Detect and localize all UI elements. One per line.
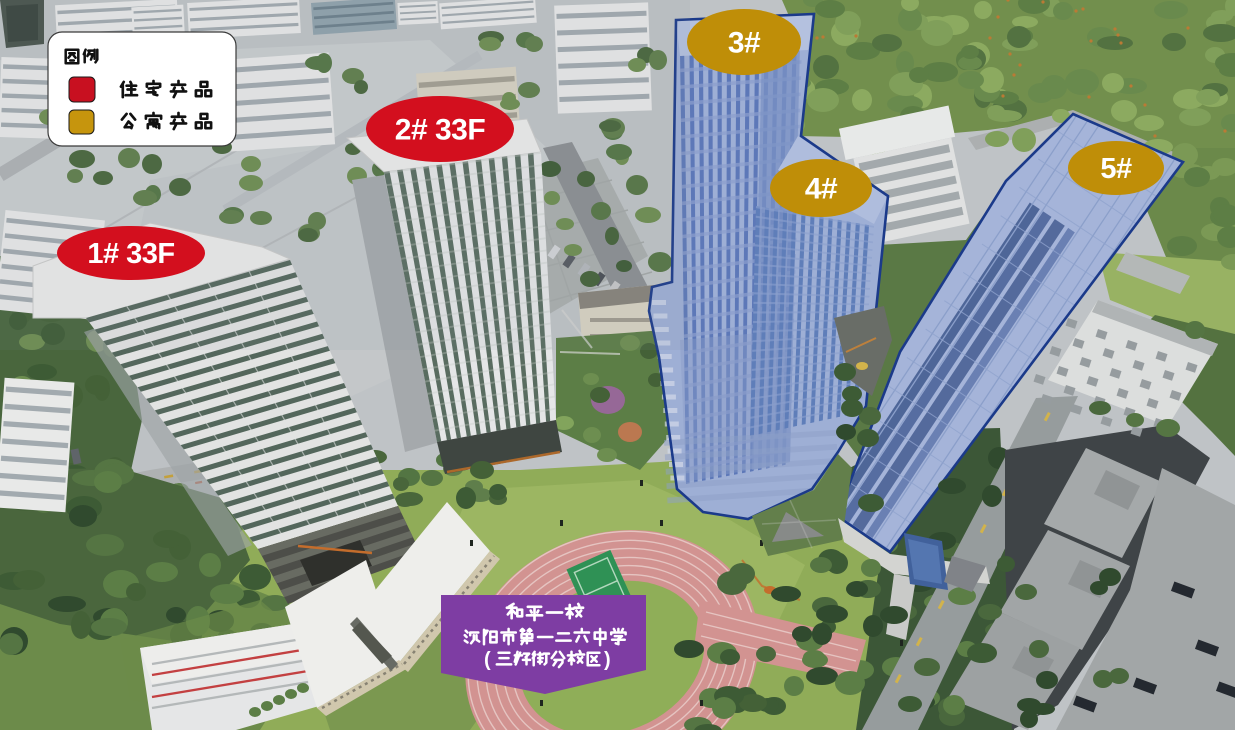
svg-text:4#: 4# [805,173,838,206]
svg-text:(: ( [484,649,491,671]
svg-text:2# 33F: 2# 33F [395,114,486,147]
svg-text:1# 33F: 1# 33F [87,238,174,270]
svg-text:5#: 5# [1100,153,1132,185]
svg-text:): ) [604,649,611,671]
svg-text:3#: 3# [728,27,761,60]
